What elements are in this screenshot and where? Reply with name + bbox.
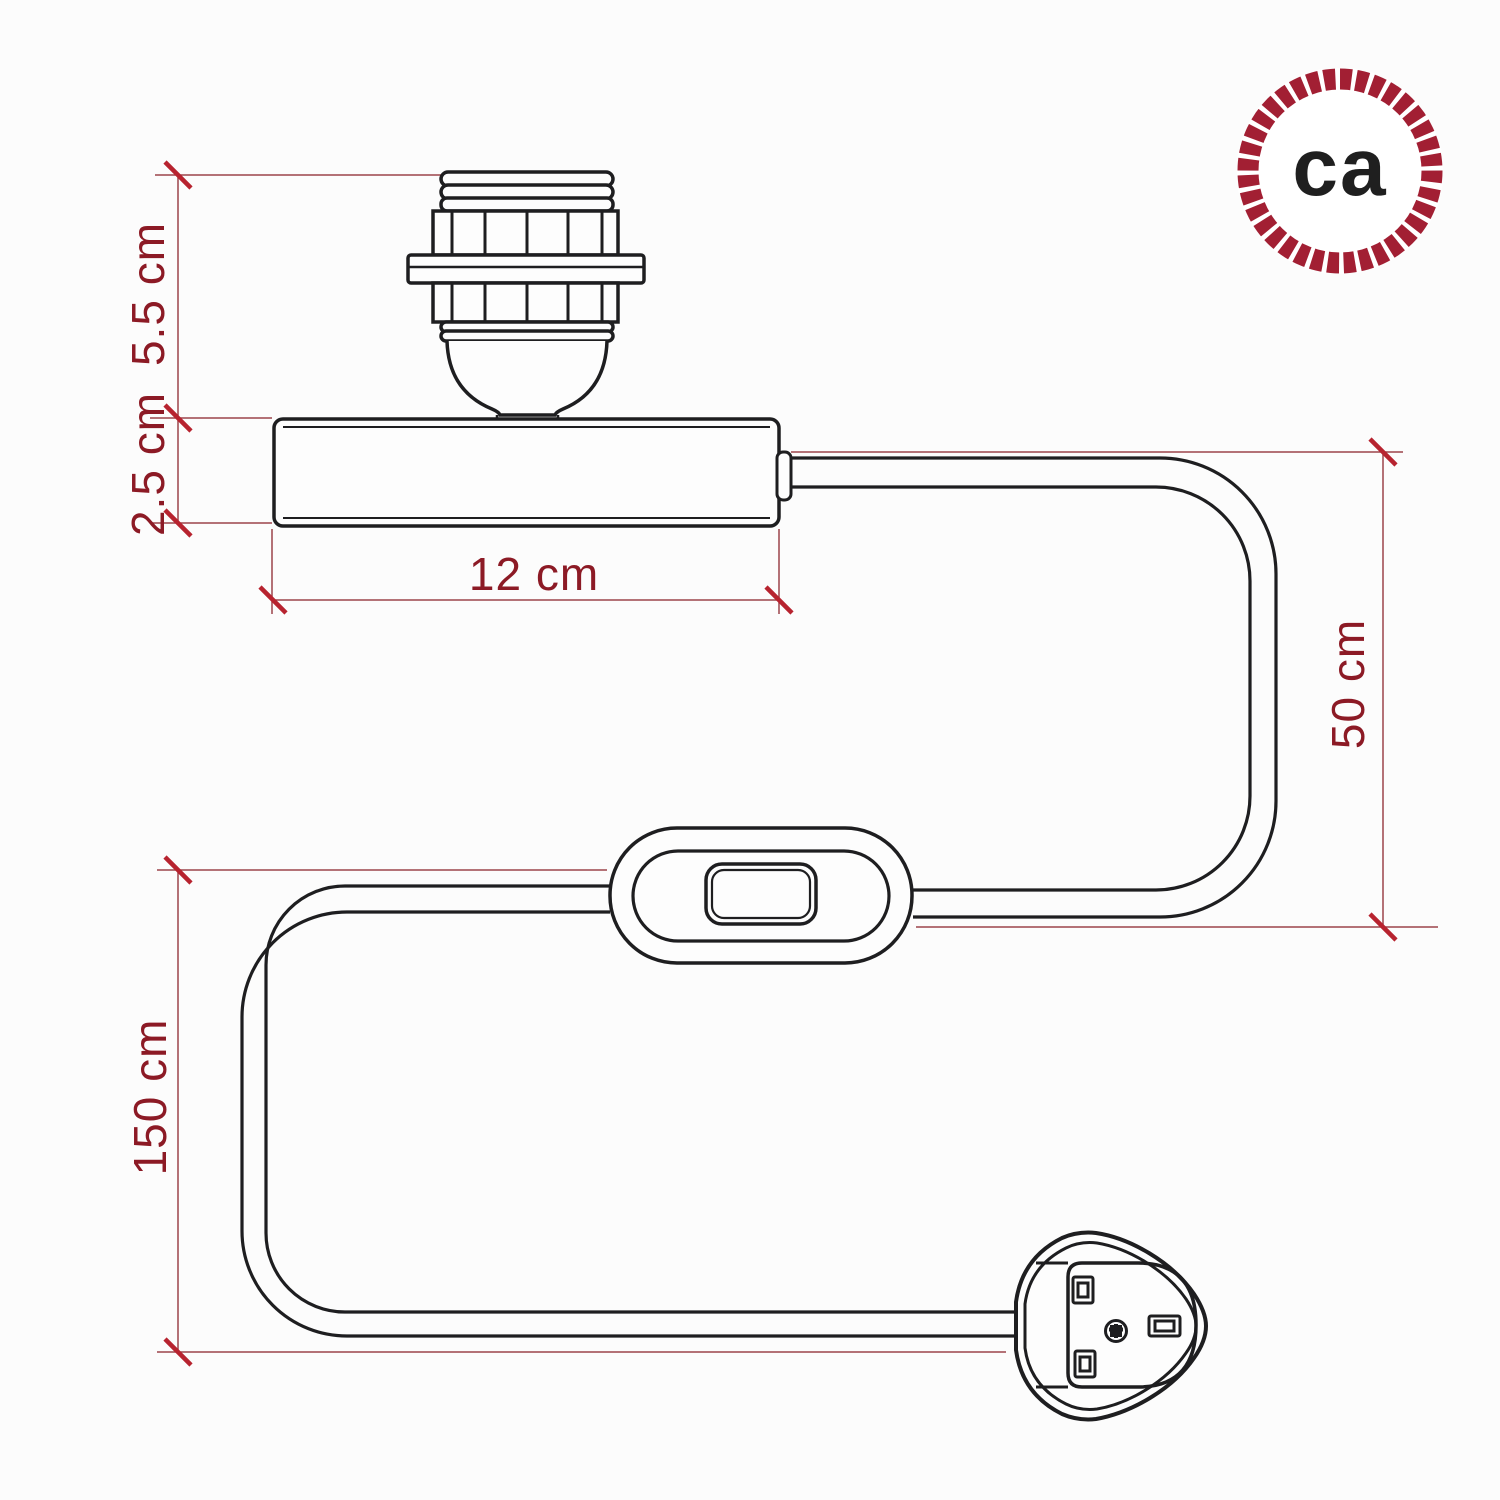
dimension-annotations xyxy=(150,162,1438,1365)
power-cable-lower xyxy=(242,886,1020,1336)
lamp-holder xyxy=(408,172,644,419)
dim-label-base-to-switch: 50 cm xyxy=(1325,619,1371,749)
uk-plug xyxy=(1016,1233,1206,1420)
dimension-ticks xyxy=(165,162,1396,1365)
brand-logo-text: ca xyxy=(1237,68,1443,274)
plug-screw xyxy=(1106,1321,1127,1342)
inline-switch xyxy=(610,828,912,963)
dim-label-switch-to-plug: 150 cm xyxy=(127,1019,173,1176)
dim-label-base-width: 12 cm xyxy=(469,551,599,597)
cable-gland xyxy=(777,452,791,500)
shade-ring-flange xyxy=(408,255,644,283)
dim-label-socket-height: 5.5 cm xyxy=(125,222,171,366)
brand-logo: ca xyxy=(1237,68,1443,274)
dim-label-base-height: 2.5 cm xyxy=(125,392,171,536)
lamp-base xyxy=(274,419,791,526)
diagram-canvas: 5.5 cm 2.5 cm 12 cm 50 cm 150 cm ca xyxy=(0,0,1500,1500)
